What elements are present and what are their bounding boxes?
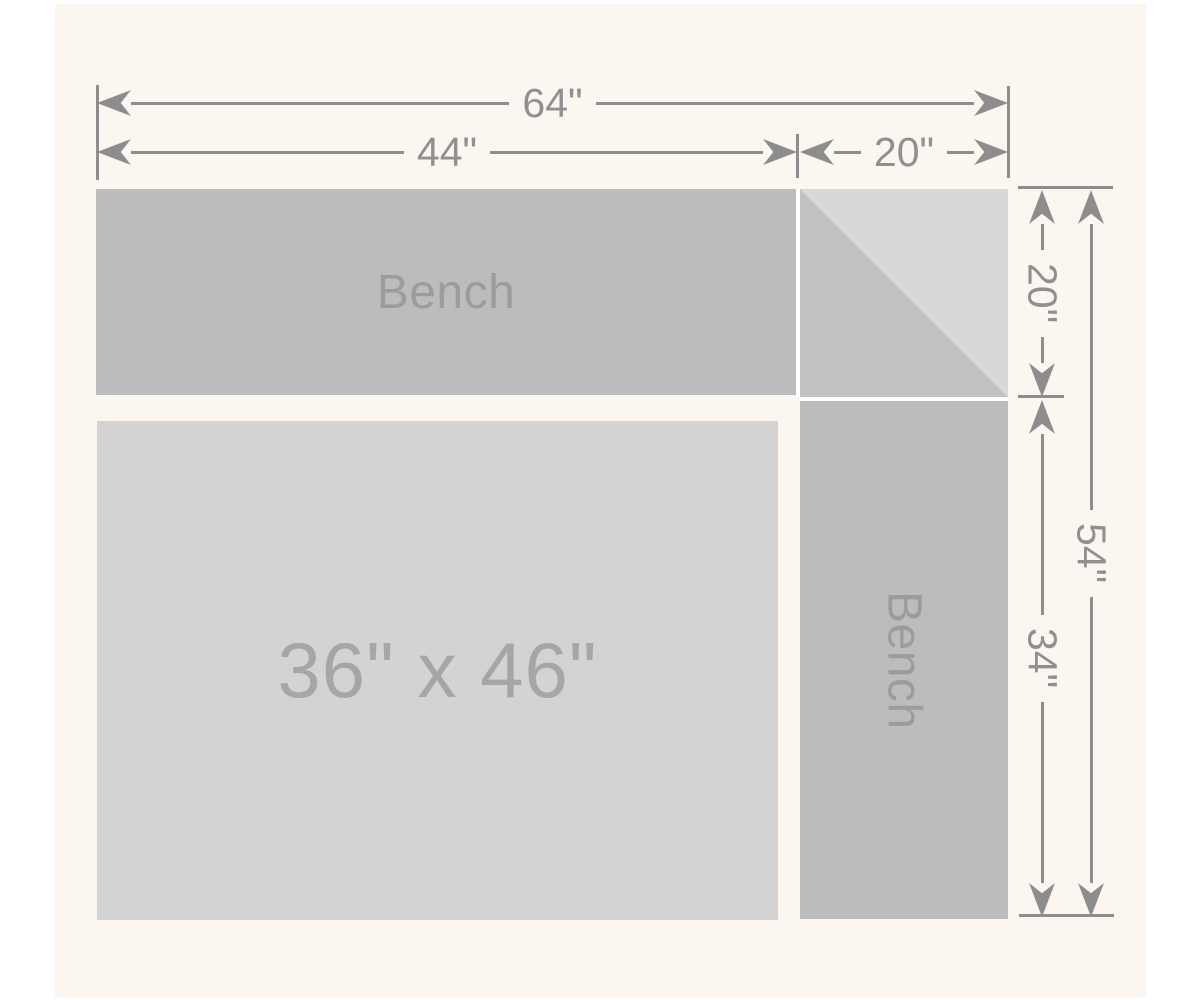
dimension-line [834, 151, 861, 154]
arrow-right-icon [974, 139, 1008, 166]
corner-width-dimension: 20" [800, 128, 1008, 176]
corner-seat [800, 189, 1008, 397]
dimension-line [131, 102, 509, 105]
dimension-line [490, 151, 763, 154]
overall-depth-label: 54" [1071, 510, 1112, 596]
dimension-line [1041, 434, 1044, 615]
dimension-line [596, 102, 974, 105]
arrow-right-icon [763, 139, 797, 166]
arrow-up-icon [1029, 400, 1056, 434]
arrow-up-icon [1029, 190, 1056, 224]
overall-width-label: 64" [509, 83, 595, 124]
corner-width-label: 20" [861, 132, 947, 173]
arrow-down-icon [1029, 883, 1056, 917]
dimension-line [1090, 597, 1093, 883]
dimension-line [1041, 702, 1044, 883]
lower-depth-label: 34" [1022, 615, 1063, 701]
bench-depth-label: 20" [1022, 250, 1063, 336]
table-size-label: 36" x 46" [277, 625, 597, 716]
floor-plan-diagram: Bench Bench 36" x 46" 64" 44" 20" [0, 0, 1200, 1000]
arrow-up-icon [1078, 190, 1105, 224]
arrow-left-icon [97, 90, 131, 117]
bench-depth-dimension: 20" [1018, 190, 1066, 397]
extension-tick-right-top [1018, 186, 1113, 189]
bench-corner-divider [796, 189, 800, 397]
bench-width-dimension: 44" [97, 128, 797, 176]
dimension-line [1090, 224, 1093, 510]
dimension-line [1041, 224, 1044, 250]
dimension-line [1041, 337, 1044, 363]
right-bench-label: Bench [877, 591, 932, 730]
arrow-down-icon [1078, 883, 1105, 917]
arrow-down-icon [1029, 363, 1056, 397]
arrow-left-icon [97, 139, 131, 166]
arrow-left-icon [800, 139, 834, 166]
overall-depth-dimension: 54" [1067, 190, 1115, 917]
dimension-line [131, 151, 404, 154]
bench-width-label: 44" [404, 132, 490, 173]
top-bench: Bench [96, 189, 796, 395]
table: 36" x 46" [97, 421, 778, 920]
overall-width-dimension: 64" [97, 79, 1008, 127]
lower-depth-dimension: 34" [1018, 400, 1066, 917]
top-bench-label: Bench [377, 265, 516, 320]
arrow-right-icon [974, 90, 1008, 117]
dimension-line [947, 151, 974, 154]
right-bench: Bench [800, 401, 1008, 919]
